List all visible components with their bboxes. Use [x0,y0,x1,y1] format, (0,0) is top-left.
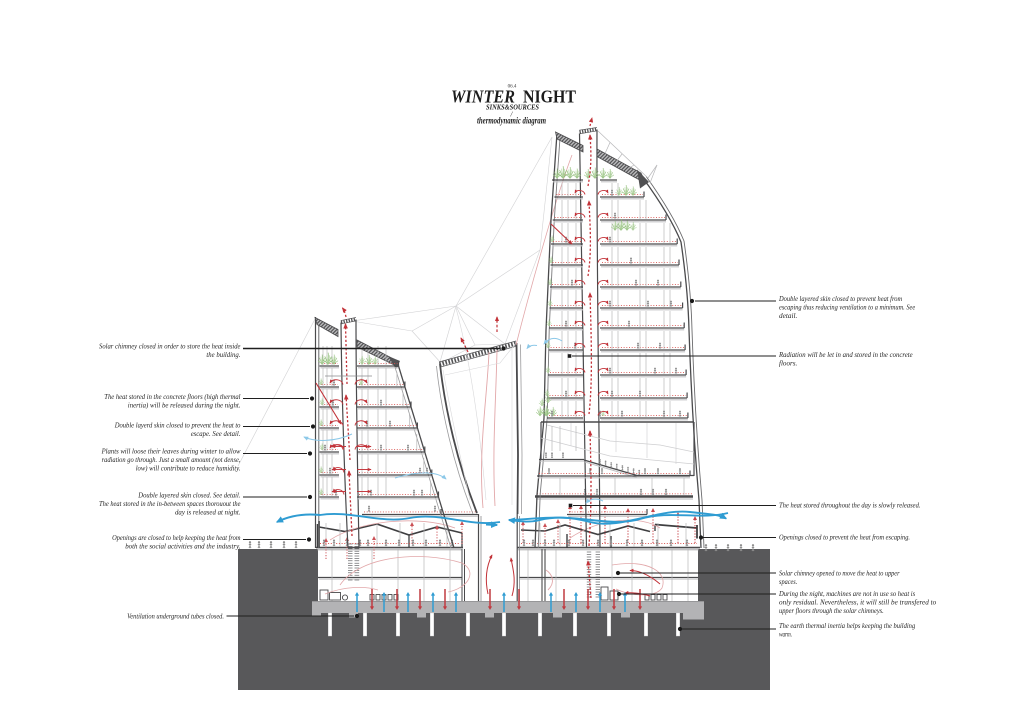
svg-text:the building.: the building. [206,350,240,359]
svg-text:floors.: floors. [779,359,797,368]
svg-text:both the social activities and: both the social activities and the indus… [125,542,240,551]
svg-text:Ventilation underground tubes: Ventilation underground tubes closed. [127,612,224,621]
svg-text:Openings closed to prevent the: Openings closed to prevent the heat from… [779,533,910,542]
svg-text:warm.: warm. [779,630,792,639]
svg-text:day is released at night.: day is released at night. [175,508,241,517]
svg-text:The earth thermal inertia help: The earth thermal inertia helps keeping … [779,621,915,630]
svg-text:Radiation will be let in and s: Radiation will be let in and stored in t… [778,350,913,359]
svg-text:spaces.: spaces. [779,577,797,586]
svg-text:escaping thus reducing ventila: escaping thus reducing ventilation to a … [779,303,916,312]
svg-text:thermodynamic diagram: thermodynamic diagram [477,116,546,126]
svg-text:SINKS&SOURCES: SINKS&SOURCES [486,103,540,112]
svg-text:low) will contribute to reduce: low) will contribute to reduce humidity. [136,464,241,473]
svg-text:detail.: detail. [779,311,797,320]
svg-text:upper floors through the solar: upper floors through the solar chimneys. [779,606,884,615]
svg-text:escape. See detail.: escape. See detail. [191,429,241,438]
svg-text:The heat stored throughout the: The heat stored throughout the day is sl… [779,501,921,510]
svg-text:inertia) will be released duri: inertia) will be released during the nig… [128,401,241,410]
